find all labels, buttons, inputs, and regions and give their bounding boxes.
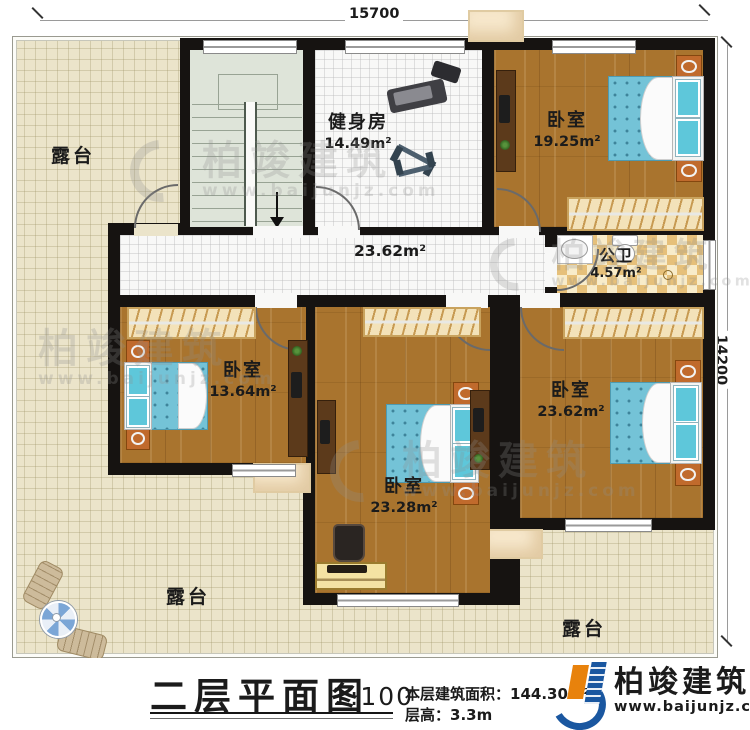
- porch-top: [468, 10, 524, 42]
- door-gap-bedroom-left: [255, 293, 297, 308]
- bed-side-shelf: [676, 119, 700, 156]
- terrace-label-bottom-right: 露台: [562, 614, 606, 641]
- room-label-hall: 23.62m²: [354, 242, 426, 260]
- bed-side-shelf: [127, 397, 149, 427]
- window-bedroom-middle: [337, 594, 459, 607]
- window-gym: [345, 40, 465, 54]
- plant-icon: [292, 346, 302, 356]
- room-name: 健身房: [324, 112, 391, 135]
- room-label-bedroom-top-right: 卧室 19.25m²: [533, 110, 600, 151]
- bed-duvet: [420, 405, 452, 482]
- room-label-bedroom-left: 卧室 13.64m²: [209, 360, 276, 401]
- door-gap-bathroom: [545, 247, 557, 287]
- nightstand: [126, 427, 150, 450]
- monitor-icon: [499, 95, 510, 123]
- dimension-tick: [698, 4, 710, 16]
- stair-divider: [244, 102, 257, 226]
- window-bedroom-left: [232, 464, 296, 477]
- nightstand: [676, 55, 702, 78]
- nightstand: [453, 482, 479, 505]
- brand: 柏竣建筑 www.baijunjz.com: [614, 666, 750, 715]
- bed-duvet: [640, 77, 676, 160]
- room-area: 4.57m²: [590, 266, 641, 282]
- window-stairwell: [203, 40, 297, 54]
- porch-bottom-middle: [487, 529, 543, 559]
- door-gap-bedroom-middle: [446, 293, 488, 308]
- tv-icon: [327, 565, 367, 573]
- bed-side-shelf: [674, 423, 698, 460]
- plant-icon: [474, 454, 483, 463]
- room-name: 卧室: [370, 476, 437, 499]
- top-dimension-label: 15700: [345, 6, 403, 22]
- area-label: 本层建筑面积：: [405, 685, 510, 703]
- desk-bedroom-left: [288, 340, 308, 457]
- brand-website: www.baijunjz.com: [614, 699, 750, 715]
- title-underline: [150, 712, 393, 719]
- window-bathroom: [703, 240, 716, 290]
- room-name: 公卫: [590, 246, 641, 266]
- hall-floor: [120, 235, 545, 295]
- monitor-icon: [291, 372, 302, 398]
- nightstand: [675, 360, 701, 383]
- room-name: 卧室: [533, 110, 600, 133]
- floor-height-value: 3.3m: [450, 706, 492, 724]
- room-area: 13.64m²: [209, 383, 276, 401]
- room-label-bedroom-middle: 卧室 23.28m²: [370, 476, 437, 517]
- stair-direction-arrow: [276, 192, 278, 218]
- nightstand: [675, 463, 701, 486]
- room-area: 19.25m²: [533, 133, 600, 151]
- terrace-label-bottom-left: 露台: [166, 582, 210, 609]
- room-label-gym: 健身房 14.49m²: [324, 112, 391, 153]
- window-bedroom-top-right: [552, 40, 636, 54]
- bed-side-shelf: [127, 366, 149, 396]
- parasol-table-center: [53, 614, 60, 621]
- room-area: 14.49m²: [324, 135, 391, 153]
- nightstand: [676, 159, 702, 182]
- wardrobe-bedroom-top-right: [567, 197, 704, 231]
- room-area: 23.62m²: [537, 403, 604, 421]
- floor-height-label: 层高：: [405, 706, 450, 724]
- floor-plan-canvas: 15700 14200: [0, 0, 750, 730]
- room-label-bathroom: 公卫 4.57m²: [590, 246, 641, 282]
- monitor-icon: [473, 408, 484, 432]
- title-block: 二层平面图 1:100 本层建筑面积：144.30m² 层高：3.3m 柏竣建筑…: [0, 658, 750, 730]
- room-area: 23.28m²: [370, 499, 437, 517]
- window-bedroom-right: [565, 519, 652, 532]
- plant-icon: [500, 140, 510, 150]
- bed-side-shelf: [676, 80, 700, 117]
- room-name: 卧室: [209, 360, 276, 383]
- floor-drain-icon: [663, 270, 673, 280]
- bed-duvet: [178, 363, 207, 429]
- wardrobe-bedroom-middle: [363, 307, 481, 337]
- sink-icon: [561, 239, 588, 259]
- dimension-tick: [31, 7, 43, 19]
- armchair-icon: [333, 524, 365, 562]
- monitor-icon: [320, 420, 330, 444]
- plan-scale: 1:100: [332, 682, 414, 711]
- room-label-bedroom-right: 卧室 23.62m²: [537, 380, 604, 421]
- wardrobe-bedroom-left: [127, 307, 256, 339]
- opening-stairs-hall: [253, 226, 303, 238]
- terrace-label-top-left: 露台: [51, 141, 95, 168]
- brand-logo-icon: [552, 662, 608, 720]
- wardrobe-bedroom-right: [563, 307, 704, 339]
- brand-name: 柏竣建筑: [614, 666, 750, 699]
- bed-side-shelf: [674, 386, 698, 423]
- room-name: 卧室: [537, 380, 604, 403]
- nightstand: [126, 340, 150, 363]
- door-gap-bedroom-right: [520, 293, 560, 308]
